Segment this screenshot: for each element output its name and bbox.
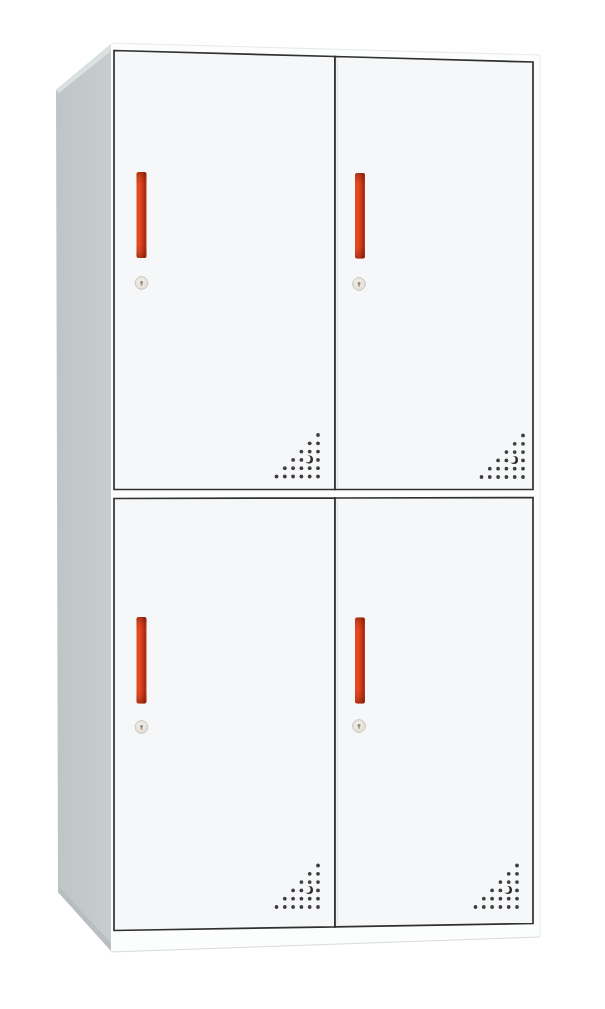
vent-hole — [308, 905, 312, 909]
vent-hole — [488, 467, 492, 471]
vent-hole — [275, 475, 279, 479]
vent-hole — [300, 889, 304, 893]
vent-hole — [316, 880, 320, 884]
vent-crescent-cutout — [304, 886, 311, 893]
vent-hole — [513, 450, 517, 454]
vent-hole — [291, 458, 295, 462]
handle-bottom-right — [355, 618, 365, 704]
handle-bar-shading — [137, 172, 147, 258]
vent-hole — [515, 872, 519, 876]
vent-hole — [316, 905, 320, 909]
vent-hole — [480, 475, 484, 479]
vent-hole — [515, 864, 519, 868]
vent-hole — [283, 466, 287, 470]
vent-hole — [316, 889, 320, 893]
vent-hole — [496, 467, 500, 471]
vent-hole — [521, 467, 525, 471]
vent-hole — [308, 450, 312, 454]
vent-hole — [499, 905, 503, 909]
handle-top-left — [137, 172, 147, 258]
side-panel-face — [56, 44, 111, 951]
vent-hole — [300, 905, 304, 909]
vent-hole — [515, 905, 519, 909]
lock-top-left — [135, 277, 148, 290]
lock-bottom-left — [135, 721, 148, 734]
vent-crescent-cutout — [503, 886, 510, 893]
vent-hole — [283, 897, 287, 901]
vent-hole — [515, 889, 519, 893]
cabinet-side-panel — [56, 44, 111, 951]
vent-hole — [521, 475, 525, 479]
vent-hole — [521, 450, 525, 454]
vent-hole — [490, 897, 494, 901]
vent-hole — [521, 434, 525, 438]
vent-hole — [316, 433, 320, 437]
vent-hole — [316, 450, 320, 454]
vent-hole — [521, 442, 525, 446]
vent-hole — [496, 459, 500, 463]
handle-bar-shading — [355, 618, 365, 704]
vent-hole — [316, 458, 320, 462]
handle-bar-shading — [137, 617, 147, 704]
vent-hole — [308, 441, 312, 445]
vent-hole — [300, 466, 304, 470]
vent-hole — [316, 872, 320, 876]
vent-hole — [283, 905, 287, 909]
vent-hole — [499, 889, 503, 893]
vent-hole — [300, 450, 304, 454]
vent-crescent-cutout — [509, 456, 516, 463]
vent-hole — [490, 905, 494, 909]
lock-accent — [141, 284, 143, 286]
vent-hole — [316, 441, 320, 445]
vent-hole — [507, 880, 511, 884]
vent-hole — [300, 880, 304, 884]
vent-hole — [482, 905, 486, 909]
door-bottom-right — [335, 498, 533, 927]
vent-hole — [308, 880, 312, 884]
vent-hole — [521, 459, 525, 463]
lock-accent — [141, 728, 143, 730]
vent-hole — [515, 880, 519, 884]
vent-hole — [513, 475, 517, 479]
vent-hole — [496, 475, 500, 479]
door-top-right — [335, 57, 533, 490]
vent-hole — [316, 864, 320, 868]
vent-hole — [507, 872, 511, 876]
locker-cabinet-illustration — [0, 0, 605, 1009]
vent-hole — [291, 466, 295, 470]
vent-hole — [505, 450, 509, 454]
vent-hole — [300, 475, 304, 479]
vent-hole — [316, 475, 320, 479]
door-top-left — [114, 51, 335, 490]
vent-hole — [499, 897, 503, 901]
vent-hole — [300, 458, 304, 462]
lock-top-right — [353, 278, 366, 291]
vent-hole — [316, 897, 320, 901]
vent-hole — [291, 897, 295, 901]
vent-hole — [308, 872, 312, 876]
vent-hole — [507, 905, 511, 909]
vent-hole — [490, 889, 494, 893]
vent-hole — [515, 897, 519, 901]
vent-hole — [482, 897, 486, 901]
vent-hole — [291, 905, 295, 909]
vent-hole — [300, 897, 304, 901]
vent-hole — [316, 466, 320, 470]
vent-hole — [308, 897, 312, 901]
vent-hole — [513, 442, 517, 446]
vent-hole — [505, 475, 509, 479]
vent-hole — [507, 897, 511, 901]
lock-accent — [358, 727, 360, 729]
handle-bar-shading — [355, 173, 365, 259]
vent-hole — [499, 880, 503, 884]
vent-hole — [505, 467, 509, 471]
vent-hole — [291, 889, 295, 893]
vent-hole — [291, 475, 295, 479]
vent-hole — [308, 475, 312, 479]
vent-hole — [308, 466, 312, 470]
vent-crescent-cutout — [304, 456, 311, 463]
product-photo — [0, 0, 605, 1009]
handle-bottom-left — [137, 617, 147, 704]
vent-hole — [474, 905, 478, 909]
vent-hole — [283, 475, 287, 479]
lock-bottom-right — [353, 720, 366, 733]
lock-accent — [358, 285, 360, 287]
door-bottom-left — [114, 498, 335, 931]
vent-hole — [275, 905, 279, 909]
vent-hole — [505, 459, 509, 463]
vent-hole — [513, 467, 517, 471]
vent-hole — [488, 475, 492, 479]
handle-top-right — [355, 173, 365, 259]
